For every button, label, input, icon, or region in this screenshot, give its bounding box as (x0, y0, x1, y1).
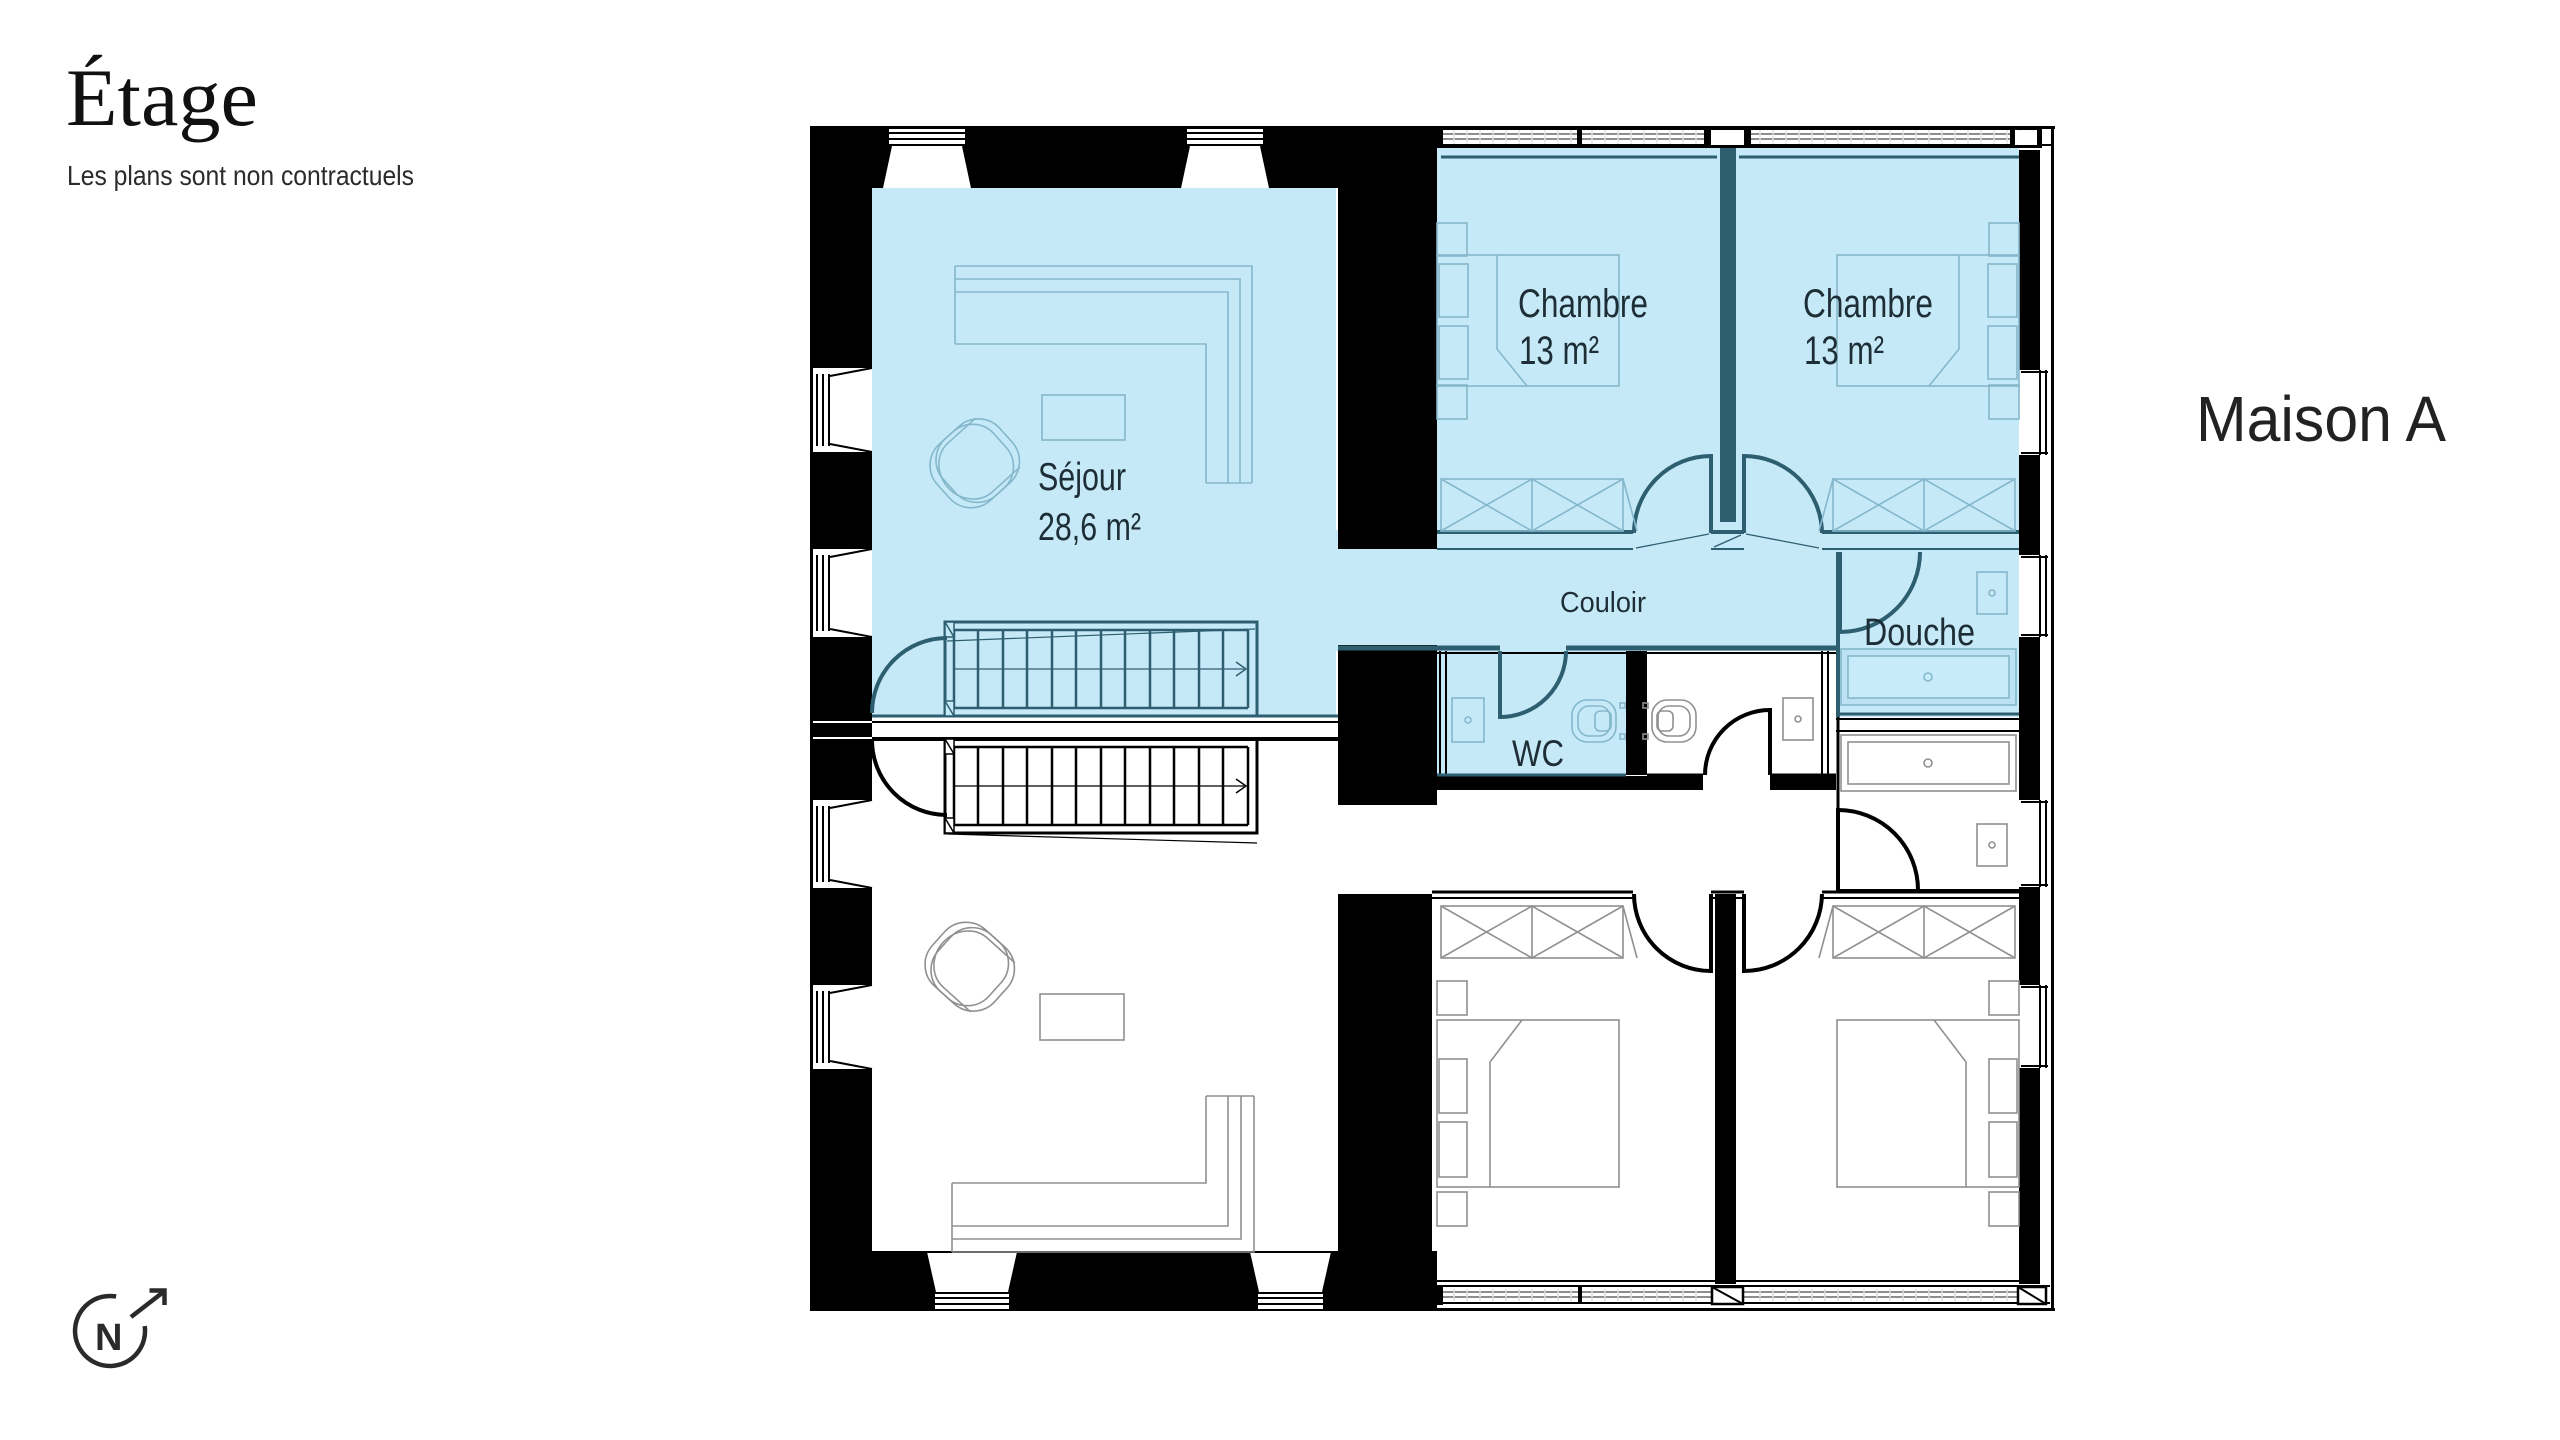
svg-text:Maison A: Maison A (2196, 383, 2446, 455)
svg-text:Étage: Étage (66, 52, 258, 143)
svg-text:WC: WC (1512, 733, 1564, 774)
svg-text:Chambre: Chambre (1518, 282, 1648, 326)
svg-text:28,6 m²: 28,6 m² (1038, 506, 1141, 549)
svg-text:Couloir: Couloir (1560, 587, 1646, 619)
svg-text:13 m²: 13 m² (1804, 329, 1884, 373)
svg-text:N: N (95, 1317, 122, 1359)
svg-text:13 m²: 13 m² (1519, 329, 1599, 373)
svg-text:Les plans sont non contractuel: Les plans sont non contractuels (67, 160, 414, 191)
svg-text:Séjour: Séjour (1038, 456, 1126, 499)
svg-text:Douche: Douche (1864, 612, 1975, 654)
svg-text:Chambre: Chambre (1803, 282, 1933, 326)
